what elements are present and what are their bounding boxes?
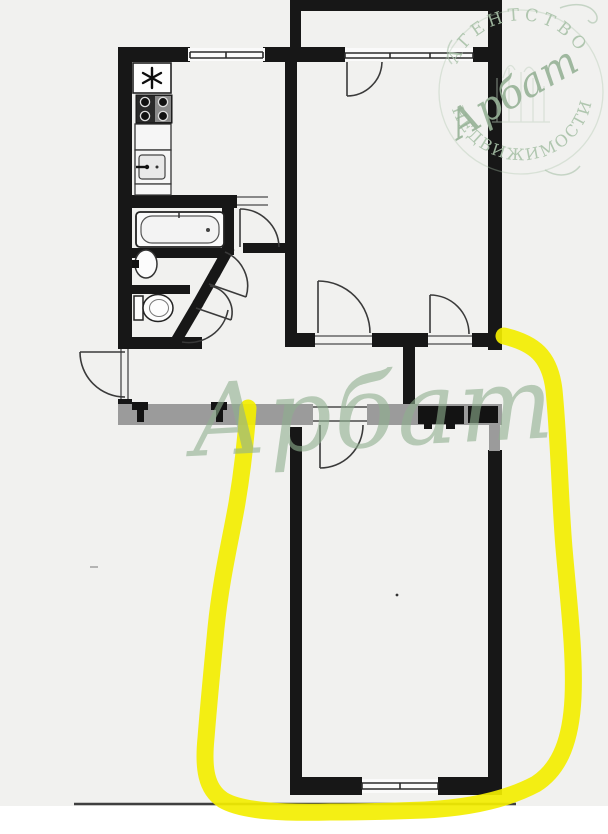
wall-segment (488, 450, 502, 795)
watermark-text: Арбат (181, 344, 558, 480)
wall-segment (132, 195, 237, 208)
wall-segment (290, 777, 362, 795)
counter (135, 124, 171, 150)
counter (135, 184, 171, 195)
wall-segment (285, 333, 315, 347)
kitchen-fixtures (133, 63, 172, 195)
wall-segment (290, 0, 301, 51)
window-bottom-room (362, 779, 438, 793)
window-kitchen (188, 48, 265, 61)
toilet-icon (134, 295, 173, 322)
wall-segment (243, 243, 290, 253)
wall-segment (285, 47, 297, 347)
scan-speck (396, 594, 399, 597)
wall-segment (132, 285, 190, 294)
fridge-icon (133, 63, 171, 93)
bathtub-icon (136, 212, 224, 247)
kitchen-sink-icon (135, 150, 171, 184)
stove-icon (136, 95, 172, 123)
wall-segment (372, 333, 428, 347)
page-container: Арбат АГЕНТСТВО НЕДВИЖИМОСТИ Арбат (0, 0, 608, 834)
wall-segment (473, 47, 502, 62)
floor-plan-image: Арбат АГЕНТСТВО НЕДВИЖИМОСТИ Арбат (0, 0, 608, 834)
wall-segment (290, 427, 302, 795)
wall-segment (118, 47, 132, 349)
entry-doorway (118, 349, 132, 399)
scan-speck (90, 566, 98, 568)
wall-segment (290, 0, 502, 11)
